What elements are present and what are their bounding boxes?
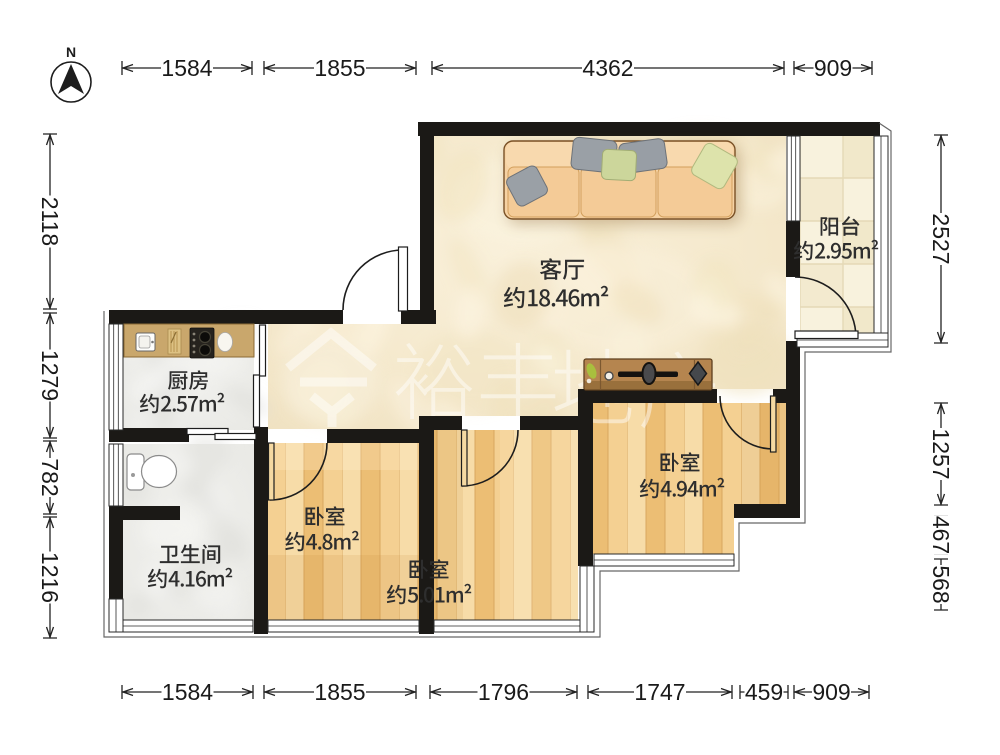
svg-text:1257: 1257 — [928, 428, 954, 479]
svg-text:N: N — [66, 44, 76, 60]
svg-text:909: 909 — [814, 55, 852, 81]
svg-text:2527: 2527 — [928, 213, 954, 264]
svg-text:909: 909 — [812, 679, 850, 705]
svg-text:1216: 1216 — [37, 552, 63, 603]
svg-text:1855: 1855 — [314, 55, 365, 81]
svg-text:1279: 1279 — [37, 350, 63, 401]
svg-text:4362: 4362 — [582, 55, 633, 81]
svg-text:1855: 1855 — [314, 679, 365, 705]
svg-text:782: 782 — [37, 458, 63, 496]
svg-text:1747: 1747 — [634, 679, 685, 705]
svg-text:467: 467 — [928, 516, 954, 554]
svg-text:2118: 2118 — [37, 197, 63, 246]
svg-text:1584: 1584 — [161, 55, 212, 81]
svg-text:1584: 1584 — [162, 679, 213, 705]
svg-text:459: 459 — [745, 679, 783, 705]
svg-text:1796: 1796 — [478, 679, 529, 705]
svg-text:568: 568 — [928, 565, 954, 603]
